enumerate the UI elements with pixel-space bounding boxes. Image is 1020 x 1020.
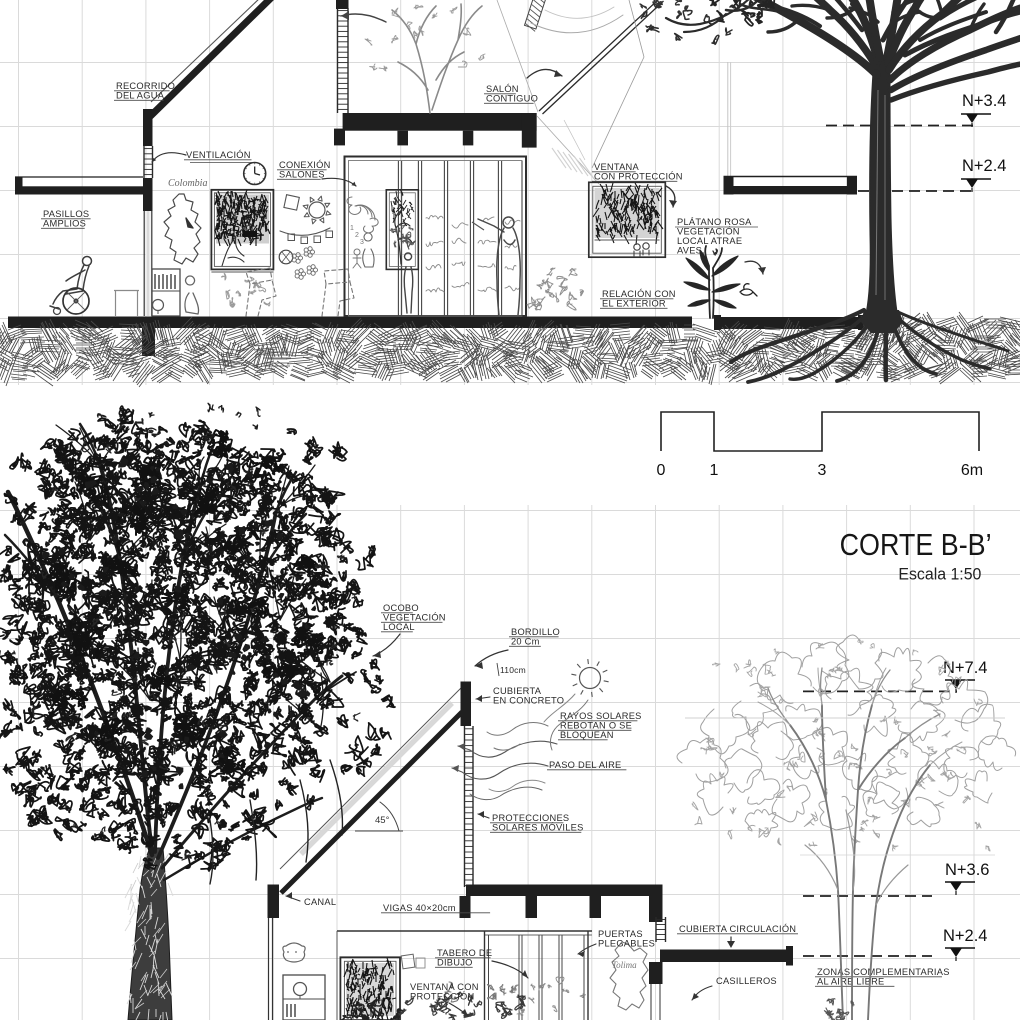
svg-text:1: 1 (350, 225, 354, 232)
svg-text:EL EXTERIOR: EL EXTERIOR (602, 299, 666, 309)
svg-text:VENTANA: VENTANA (594, 162, 640, 172)
svg-text:PUERTAS: PUERTAS (598, 929, 643, 939)
svg-text:LOCAL: LOCAL (383, 622, 415, 632)
svg-text:DEL AGUA: DEL AGUA (116, 91, 165, 101)
svg-text:0: 0 (657, 462, 666, 479)
svg-text:SOLARES MÓVILES: SOLARES MÓVILES (492, 823, 584, 833)
svg-text:VEGETACIÓN: VEGETACIÓN (383, 613, 446, 623)
svg-text:PROTECCIONES: PROTECCIONES (492, 813, 569, 823)
svg-text:CON PROTECCIÓN: CON PROTECCIÓN (594, 172, 683, 182)
svg-text:PASO DEL AIRE: PASO DEL AIRE (549, 760, 622, 770)
svg-text:TABERO DE: TABERO DE (437, 948, 492, 958)
svg-text:ZONAS COMPLEMENTARIAS: ZONAS COMPLEMENTARIAS (817, 967, 950, 977)
svg-text:PASILLOS: PASILLOS (43, 209, 89, 219)
svg-text:Escala 1:50: Escala 1:50 (898, 566, 981, 584)
svg-text:Colombia: Colombia (168, 178, 207, 189)
svg-text:AL AIRE LIBRE: AL AIRE LIBRE (817, 977, 885, 987)
svg-text:BLOQUEAN: BLOQUEAN (560, 730, 614, 740)
svg-text:CUBIERTA CIRCULACIÓN: CUBIERTA CIRCULACIÓN (679, 924, 796, 934)
svg-text:CUBIERTA: CUBIERTA (493, 686, 542, 696)
svg-text:CONTIGUO: CONTIGUO (486, 94, 538, 104)
svg-text:SALÓN: SALÓN (486, 84, 519, 94)
svg-text:REBOTAN O SE: REBOTAN O SE (560, 721, 632, 731)
svg-text:RELACIÓN CON: RELACIÓN CON (602, 289, 676, 299)
svg-text:6m: 6m (961, 462, 983, 479)
svg-text:VENTANA CON: VENTANA CON (410, 982, 479, 992)
svg-text:CASILLEROS: CASILLEROS (716, 976, 777, 986)
svg-text:RECORRIDO: RECORRIDO (116, 81, 175, 91)
svg-text:DIBUJO: DIBUJO (437, 958, 473, 968)
svg-text:N+2.4: N+2.4 (962, 157, 1007, 175)
svg-text:N+3.6: N+3.6 (945, 861, 990, 879)
svg-text:BORDILLO: BORDILLO (511, 627, 560, 637)
svg-text:PROTECCIÓN: PROTECCIÓN (410, 992, 474, 1002)
svg-text:PLÁTANO ROSA: PLÁTANO ROSA (677, 217, 752, 227)
svg-text:CORTE B-B’: CORTE B-B’ (840, 527, 992, 562)
svg-text:AMPLIOS: AMPLIOS (43, 219, 86, 229)
svg-text:OCOBO: OCOBO (383, 603, 419, 613)
svg-text:LOCAL ATRAE: LOCAL ATRAE (677, 236, 742, 246)
svg-text:VEGETACIÓN: VEGETACIÓN (677, 227, 740, 237)
svg-text:VIGAS 40×20cm: VIGAS 40×20cm (383, 903, 456, 913)
svg-text:PLEGABLES: PLEGABLES (598, 939, 655, 949)
svg-text:VENTILACIÓN: VENTILACIÓN (186, 150, 251, 160)
svg-text:N+3.4: N+3.4 (962, 92, 1007, 110)
svg-text:1: 1 (710, 462, 719, 479)
svg-text:N+2.4: N+2.4 (943, 927, 988, 945)
svg-text:Tolima: Tolima (612, 960, 637, 970)
svg-text:110cm: 110cm (500, 665, 526, 675)
svg-text:CANAL: CANAL (304, 897, 336, 907)
svg-text:20 Cm: 20 Cm (511, 637, 540, 647)
svg-text:3: 3 (818, 462, 827, 479)
svg-text:2: 2 (355, 232, 359, 239)
svg-text:EN CONCRETO: EN CONCRETO (493, 696, 564, 706)
svg-text:3: 3 (360, 239, 364, 246)
svg-text:CONEXIÓN: CONEXIÓN (279, 160, 331, 170)
svg-text:RAYOS SOLARES: RAYOS SOLARES (560, 711, 642, 721)
svg-text:45°: 45° (375, 815, 390, 826)
svg-text:SALONES: SALONES (279, 170, 325, 180)
